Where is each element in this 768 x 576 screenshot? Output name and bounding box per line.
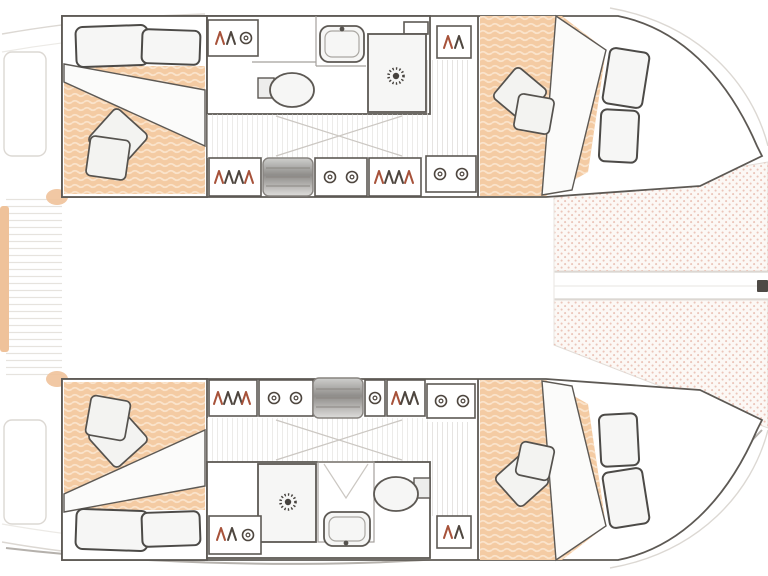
locker-ring-symbol bbox=[427, 384, 475, 418]
hanging-locker-symbol bbox=[437, 26, 471, 58]
hanging-locker-symbol bbox=[209, 158, 261, 196]
pillow bbox=[602, 47, 650, 109]
locker-ring-symbol bbox=[426, 156, 476, 192]
pillow bbox=[75, 25, 148, 67]
hanging-locker-symbol bbox=[387, 380, 425, 416]
pillow bbox=[141, 511, 200, 547]
hanging-locker-symbol bbox=[209, 516, 261, 554]
pillow bbox=[141, 29, 200, 65]
hanging-locker-symbol bbox=[208, 20, 258, 56]
pillow bbox=[75, 509, 148, 551]
locker-ring-symbol bbox=[259, 380, 313, 416]
faucet bbox=[344, 541, 349, 546]
slatted-floor bbox=[424, 422, 472, 516]
throw-pillow bbox=[85, 135, 130, 180]
shelf bbox=[404, 22, 428, 34]
cockpit-seat bbox=[4, 52, 46, 156]
catamaran-floorplan-svg: Catamaran 4-cabin layout floor plan bbox=[0, 0, 768, 576]
slatted-floor bbox=[207, 418, 430, 462]
slatted-floor bbox=[207, 114, 430, 158]
stern-pad bbox=[0, 206, 9, 352]
throw-pillow bbox=[515, 441, 555, 481]
cockpit-seat bbox=[4, 420, 46, 524]
faucet bbox=[340, 27, 345, 32]
upper-hull bbox=[62, 16, 762, 197]
pillow bbox=[602, 467, 650, 529]
floorplan: Catamaran 4-cabin layout floor plan bbox=[0, 0, 768, 576]
throw-pillow bbox=[513, 93, 555, 135]
lower-aft-cabin bbox=[62, 379, 207, 560]
upper-aft-cabin bbox=[62, 16, 207, 197]
sink bbox=[320, 26, 364, 62]
hanging-locker-symbol bbox=[209, 380, 257, 416]
sink bbox=[324, 512, 370, 546]
shower bbox=[368, 34, 426, 112]
pillow bbox=[599, 109, 640, 163]
locker-ring-symbol bbox=[315, 158, 367, 196]
shower bbox=[258, 464, 316, 542]
hanging-locker-symbol bbox=[369, 158, 421, 196]
pillow bbox=[599, 413, 640, 467]
lower-hull bbox=[62, 378, 762, 560]
bow-fitting bbox=[757, 280, 768, 292]
locker-ring-symbol bbox=[365, 380, 385, 416]
companionway-steps bbox=[263, 158, 313, 196]
companionway-steps bbox=[313, 378, 363, 418]
throw-pillow bbox=[85, 395, 131, 441]
slatted-floor bbox=[424, 60, 472, 156]
stern-platform-slats bbox=[6, 198, 62, 378]
hanging-locker-symbol bbox=[437, 516, 471, 548]
